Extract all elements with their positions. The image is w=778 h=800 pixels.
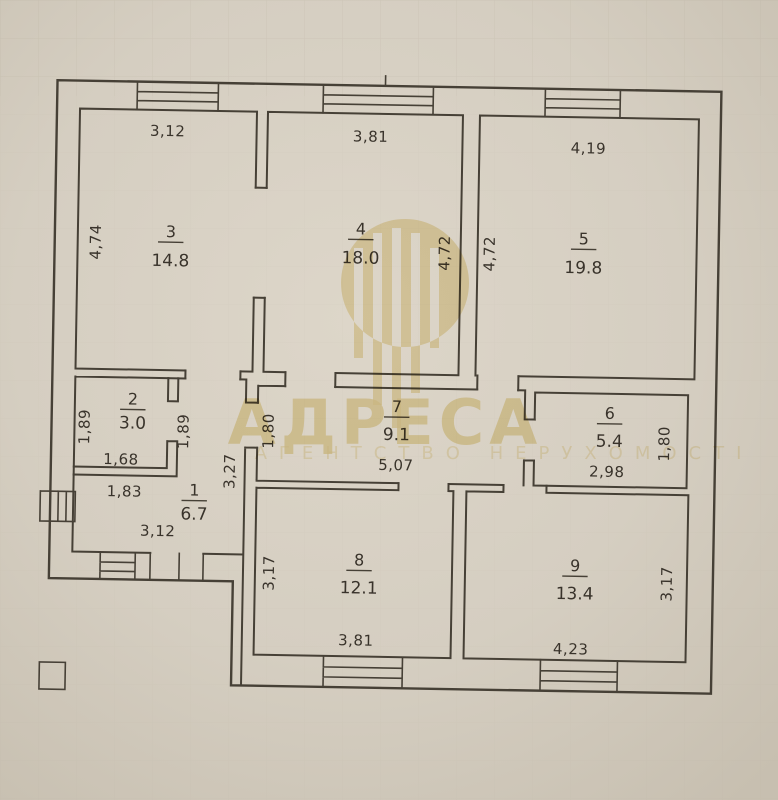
room-9-dim-right: 3,17 [658, 566, 677, 602]
room-6-number: 6 [605, 404, 616, 423]
room-3-area: 14.8 [151, 251, 189, 272]
floor-plan-svg: 3 14.8 3,12 4,74 4 18.0 3,81 4,72 5 19.8… [0, 0, 778, 800]
room-5-dim-top: 4,19 [571, 139, 607, 158]
room-1-number: 1 [189, 481, 200, 500]
room-6-dim-bottom: 2,98 [589, 463, 625, 482]
room-4-dim-top: 3,81 [353, 127, 389, 146]
room-9-area: 13.4 [556, 584, 594, 605]
room-3-dim-left: 4,74 [86, 224, 105, 260]
room-3-number: 3 [166, 222, 177, 241]
room-1-dim-top: 1,83 [107, 482, 143, 501]
room-5-dim-left: 4,72 [480, 236, 499, 272]
room-9-number: 9 [570, 556, 581, 575]
room-5-area: 19.8 [564, 258, 602, 279]
room-1-area: 6.7 [180, 504, 207, 524]
room-9-dim-bottom: 4,23 [553, 640, 589, 659]
room-2-dim-right: 1,89 [174, 414, 193, 450]
room-5-number: 5 [579, 229, 590, 248]
floorplan-photo: 3 14.8 3,12 4,74 4 18.0 3,81 4,72 5 19.8… [0, 0, 778, 800]
room-8-dim-left: 3,17 [260, 555, 279, 591]
room-8-number: 8 [354, 550, 365, 569]
room-3-dim-top: 3,12 [150, 122, 186, 141]
room-2-number: 2 [128, 389, 139, 408]
room-1-dim-bottom: 3,12 [140, 522, 176, 541]
room-2-dim-bottom: 1,68 [103, 450, 139, 469]
room-2-dim-left: 1,89 [75, 409, 94, 445]
room-8-area: 12.1 [340, 578, 378, 599]
room-2-area: 3.0 [119, 413, 146, 433]
watermark-subtitle: АГЕНТСТВО НЕРУХОМОСТІ [255, 443, 754, 464]
room-8-dim-bottom: 3,81 [338, 631, 374, 650]
